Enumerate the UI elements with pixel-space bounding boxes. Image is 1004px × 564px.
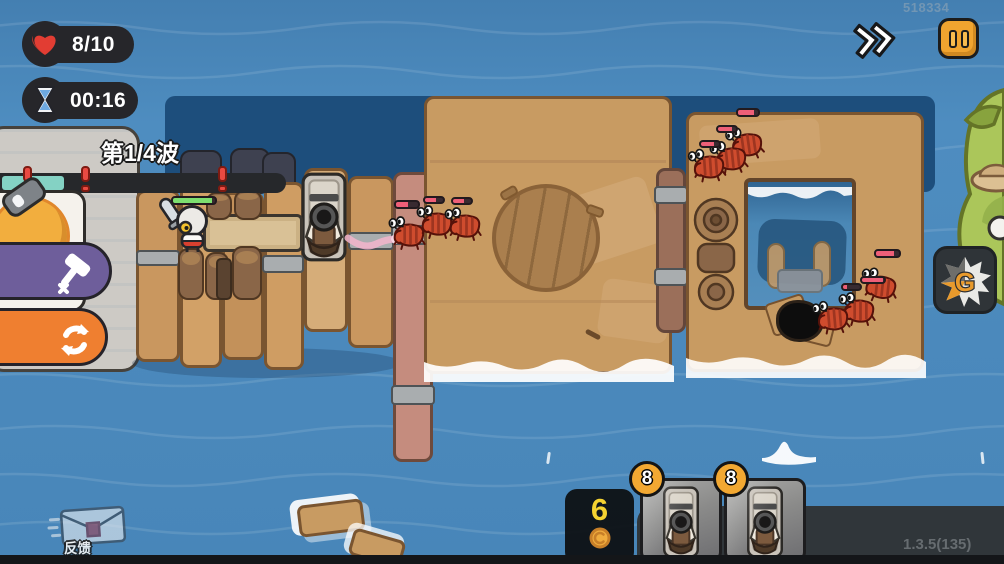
coin-icon (589, 527, 611, 549)
g-emblem-icon: G (939, 253, 991, 309)
log-stool (232, 246, 262, 300)
enemy-health-bar (736, 108, 760, 117)
log-stack (692, 196, 742, 316)
card-cost: 8 (642, 468, 653, 490)
feedback-envelope-icon[interactable] (45, 501, 140, 551)
crab-enemy (811, 298, 854, 337)
timer-value: 00:16 (70, 89, 126, 113)
card-cost-badge: 8 (629, 461, 665, 497)
heart-icon (31, 31, 59, 57)
watermark-id: 518334 (903, 0, 949, 15)
crab-enemy (687, 147, 729, 186)
enemy-health-bar (423, 196, 445, 204)
log-stool (178, 248, 204, 300)
enemy-health-bar (699, 140, 721, 148)
raft-water-hole (744, 178, 856, 310)
pause-bar-icon (949, 30, 957, 48)
refresh-icon (55, 320, 95, 360)
hourglass-icon (32, 85, 58, 115)
version-label: 1.3.5(135) (903, 536, 971, 553)
fast-forward-button[interactable] (850, 22, 898, 60)
crate (216, 258, 232, 300)
hammer-icon (53, 252, 97, 296)
enemy-health-bar (874, 249, 901, 258)
coin-balance: 6 (565, 492, 634, 528)
wave-marker-icon (81, 166, 91, 192)
enemy-health-bar (841, 283, 862, 291)
hole-foam (748, 188, 852, 202)
plank-seam (430, 160, 666, 163)
feedback-label[interactable]: 反馈 (64, 537, 91, 557)
card-cost: 8 (726, 468, 737, 490)
metal-band (654, 186, 688, 204)
cannon-card-art (745, 486, 785, 558)
wave-marker-icon (218, 166, 228, 192)
hero-health-bar (171, 196, 217, 205)
health-value: 8/10 (72, 33, 115, 57)
pause-bar-icon (961, 30, 969, 48)
coin-panel: 6 (565, 489, 634, 564)
raft-plank (348, 176, 394, 348)
metal-band (391, 385, 435, 405)
enemy-health-bar (451, 197, 473, 205)
pause-button[interactable] (938, 18, 979, 59)
wave-crest (760, 438, 818, 464)
metal-band (136, 250, 180, 266)
g-emblem-button[interactable]: G (933, 246, 997, 314)
crab-enemy (444, 207, 484, 243)
barrel-shine (11, 193, 26, 209)
raft-foam (424, 352, 674, 378)
raft-plank (264, 182, 304, 370)
plank-seam (430, 300, 666, 303)
enemy-health-bar (716, 125, 738, 133)
bottom-strip (0, 555, 1004, 564)
round-hatch (492, 184, 600, 292)
hammer-button[interactable] (0, 242, 112, 300)
enemy-health-bar (860, 276, 886, 284)
reroll-button[interactable] (0, 308, 108, 366)
wave-label: 第1/4波 (70, 134, 210, 168)
metal-band (654, 268, 688, 286)
card-cost-badge: 8 (713, 461, 749, 497)
log-stool (234, 190, 262, 220)
cannon-card-art (661, 486, 701, 558)
metal-band (262, 255, 304, 273)
enemy-health-bar (394, 200, 420, 209)
game-viewport: 第1/4波 8/10 00:16 518334 (0, 0, 1004, 564)
svg-text:G: G (955, 267, 975, 297)
